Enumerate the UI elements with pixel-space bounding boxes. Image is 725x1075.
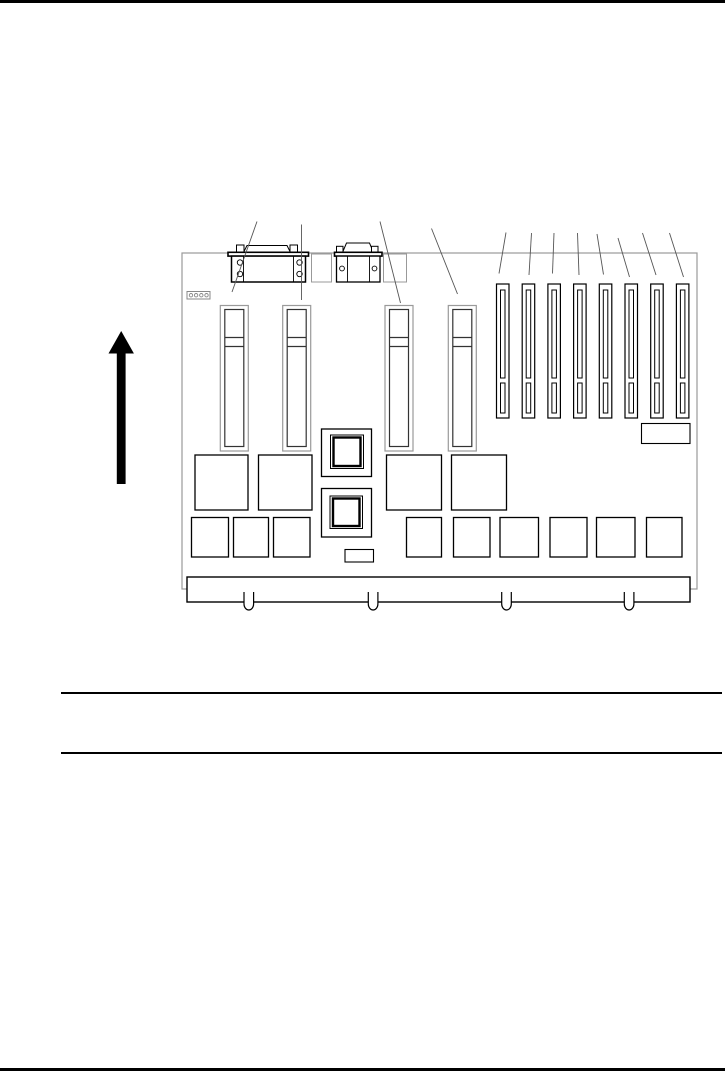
chip-small-4 xyxy=(407,518,442,558)
serial-port-shell xyxy=(343,243,374,253)
expansion-slot-3-outer xyxy=(548,284,561,418)
expansion-slot-7-outer xyxy=(651,284,664,418)
chip-large-1 xyxy=(195,455,248,510)
orientation-arrow-shaft xyxy=(117,352,126,485)
expansion-slot-5-outer xyxy=(599,284,612,418)
mounting-tab-3 xyxy=(502,592,512,610)
note-separator-bottom-rule xyxy=(61,752,722,754)
chip-small-8 xyxy=(597,518,636,558)
expansion-slot-6-outer xyxy=(625,284,638,418)
note-separator-top-rule xyxy=(61,692,722,694)
chip-small-7 xyxy=(550,518,587,558)
parallel-port-shell xyxy=(244,246,291,253)
chip-small-9 xyxy=(647,518,683,558)
component-block-left xyxy=(312,254,332,282)
orientation-arrow-head xyxy=(109,331,134,354)
chip-large-4 xyxy=(452,455,507,510)
expansion-slot-2-outer xyxy=(522,284,535,418)
jumper-block xyxy=(187,292,210,300)
chip-small-2 xyxy=(234,518,269,558)
serial-port-body xyxy=(337,256,381,282)
mounting-tab-1 xyxy=(244,592,254,610)
system-board-figure xyxy=(0,0,725,650)
chip-large-2 xyxy=(259,455,313,510)
expansion-slot-8-outer xyxy=(676,284,689,418)
battery-block xyxy=(642,424,691,444)
component-block-right xyxy=(384,254,407,282)
bottom-edge-bar xyxy=(187,577,690,602)
expansion-slot-4-outer xyxy=(574,284,587,418)
chip-small-6 xyxy=(500,518,539,558)
chip-small-3 xyxy=(274,518,311,558)
mounting-tab-4 xyxy=(624,592,634,610)
small-component-block xyxy=(345,550,374,563)
parallel-port-body xyxy=(232,256,306,282)
expansion-slot-1-outer xyxy=(497,284,510,418)
chip-small-5 xyxy=(454,518,491,558)
chip-large-3 xyxy=(387,455,442,510)
mounting-tab-2 xyxy=(368,592,378,610)
chip-small-1 xyxy=(192,518,229,558)
page-footer-rule xyxy=(0,1068,725,1071)
